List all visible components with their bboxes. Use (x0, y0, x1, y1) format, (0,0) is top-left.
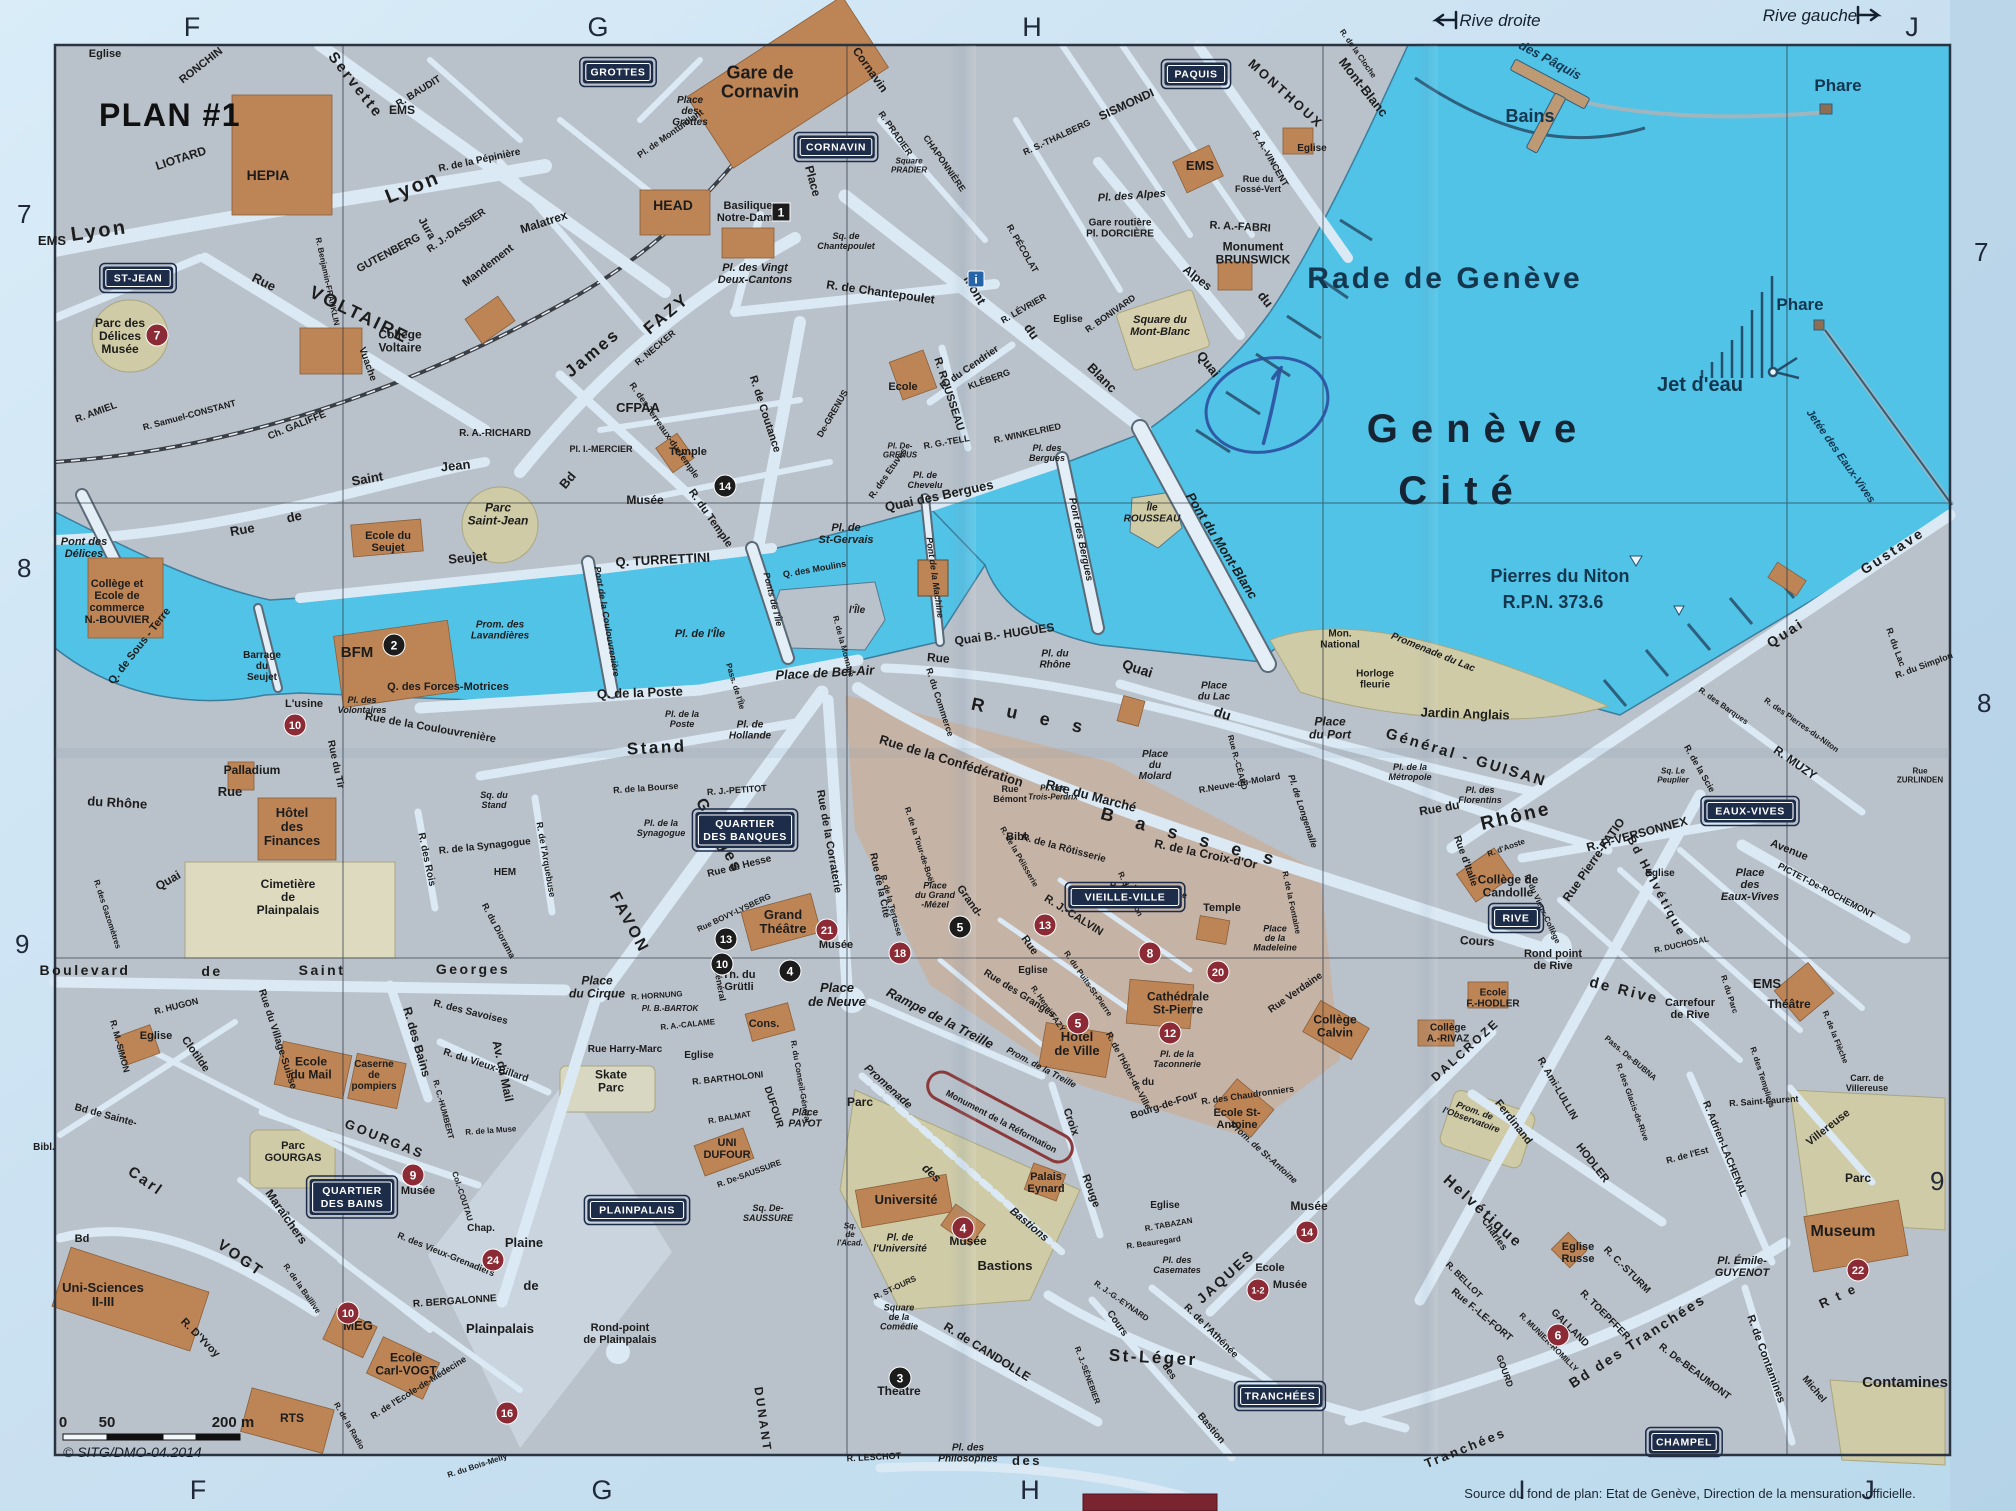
map-label: l'Île (849, 603, 866, 616)
grid-ref-col: H (1020, 1475, 1040, 1505)
grid-ref-col: F (190, 1475, 207, 1505)
map-label: Bains (1505, 106, 1554, 126)
grid-ref-row: 7 (17, 199, 31, 229)
map-label: de (523, 1278, 538, 1293)
map-label: Pl. duRhône (1039, 649, 1071, 671)
district-badge: PAQUIS (1161, 60, 1230, 89)
map-label: GrandThéâtre (760, 907, 807, 936)
map-label: MonumentBRUNSWICK (1216, 240, 1291, 267)
poi-marker-2: 2 (383, 634, 405, 656)
map-label: du (1142, 1077, 1154, 1088)
grid-ref-col: G (591, 1475, 612, 1505)
poi-marker-number: 4 (960, 1221, 967, 1235)
poi-marker-number: 3 (897, 1371, 904, 1385)
map-label: Parc (847, 1095, 873, 1109)
map-label: Ecole (1255, 1262, 1284, 1274)
map-label: Eglise (140, 1030, 172, 1042)
poi-marker-number: 18 (894, 948, 906, 960)
map-label: du Rhône (87, 793, 148, 811)
district-badge: CORNAVIN (794, 133, 878, 162)
map-label: Plainpalais (466, 1321, 534, 1336)
grid-ref-row: 9 (15, 929, 29, 959)
map-label: Sq. duStand (480, 790, 508, 810)
map-label: Q. de la Poste (597, 684, 683, 702)
district-badge: ST-JEAN (100, 264, 176, 293)
map-label: PLAN #1 (99, 97, 241, 133)
legend-box-partial (1083, 1494, 1217, 1511)
poi-marker-4: 4 (952, 1217, 974, 1239)
poi-marker-10: 10 (337, 1302, 359, 1324)
map-label: SkateParc (595, 1068, 627, 1095)
district-badge: GROTTES (580, 58, 656, 87)
map-label: Cours (1460, 933, 1496, 949)
map-label: CollègeA.-RIVAZ (1427, 1023, 1470, 1045)
grid-ref-col: G (587, 12, 608, 42)
map-label: Pl. de laMétropole (1388, 762, 1431, 782)
map-label: Placedu Port (1309, 715, 1352, 742)
grid-ref-col: H (1022, 12, 1042, 42)
map-label: Rue Harry-Marc (588, 1044, 663, 1055)
district-badge: CHAMPEL (1646, 1428, 1722, 1457)
poi-marker-1-2: 1-2 (1247, 1279, 1269, 1301)
map-label: Ecole duSeujet (365, 530, 411, 554)
poi-marker-number: 1-2 (1251, 1285, 1264, 1295)
poi-marker-14: 14 (714, 475, 736, 497)
map-label: Ecole (888, 381, 917, 393)
map-label: de (285, 508, 303, 526)
scale-label: 200 m (212, 1414, 255, 1431)
district-badge: QUARTIERDES BANQUES (692, 809, 797, 851)
map-label: EgliseRusse (1561, 1241, 1594, 1265)
map-label: Pl. de laPoste (665, 709, 699, 729)
map-label: CollègeCalvin (1313, 1013, 1357, 1040)
map-label: Musée (626, 493, 664, 507)
poi-marker-number: 9 (410, 1168, 417, 1182)
map-label: Parc desDélicesMusée (95, 316, 145, 356)
district-badge-label: QUARTIERDES BAINS (321, 1185, 384, 1210)
map-label: EMS (38, 233, 67, 248)
district-badge: TRANCHÉES (1235, 1382, 1326, 1411)
poi-marker-number: 12 (1164, 1028, 1176, 1040)
map-label: Temple (1203, 902, 1241, 914)
map-label: Pl. de laSynagogue (637, 818, 686, 838)
map-label: Eglise (1053, 314, 1083, 325)
map-label: Stand (626, 736, 687, 758)
poi-marker-number: 8 (1147, 946, 1154, 960)
district-badge-label: ST-JEAN (114, 273, 163, 285)
map-label: de (201, 963, 222, 979)
map-label: Musée (401, 1185, 435, 1197)
map-label: Chap. (467, 1223, 495, 1234)
poi-marker-number: 10 (342, 1308, 354, 1320)
poi-marker-number: 6 (1555, 1328, 1562, 1342)
map-label: Pl. B.-BARTOK (642, 1004, 700, 1013)
map-label: Bastions (978, 1258, 1033, 1273)
map-label: Sq. LePeuplier (1657, 767, 1689, 785)
map-label: Palladium (224, 763, 281, 777)
poi-marker-number: 10 (716, 959, 728, 971)
poi-marker-number: i (974, 272, 977, 286)
poi-marker-10: 10 (711, 953, 733, 975)
district-badge-label: VIEILLE-VILLE (1085, 892, 1166, 904)
district-badge: EAUX-VIVES (1701, 797, 1799, 826)
poi-marker-number: 10 (289, 720, 301, 732)
map-label: Q. des Forces-Motrices (387, 681, 509, 693)
poi-marker-number: 5 (1075, 1016, 1082, 1030)
map-label: Carr. deVillereuse (1846, 1073, 1888, 1093)
poi-marker-22: 22 (1847, 1259, 1869, 1281)
map-label: R. A.-RICHARD (459, 428, 531, 439)
map-label: Gare routièrePl. DORCIÈRE (1086, 218, 1154, 240)
map-label: Carrefourde Rive (1665, 997, 1716, 1021)
map-label: Pl. desBergues (1029, 443, 1065, 463)
poi-marker-number: 4 (787, 964, 794, 978)
map-label: PlacePAYOT (789, 1108, 823, 1130)
map-label: Rue (926, 650, 950, 666)
map-label: SquarePRADIER (891, 157, 927, 175)
map-label: Cons. (749, 1018, 780, 1030)
phare-paquis (1820, 104, 1832, 114)
map-label: Pl. de l'Île (675, 627, 725, 640)
poi-marker-8: 8 (1139, 942, 1161, 964)
poi-marker-20: 20 (1207, 961, 1229, 983)
map-label: Phare (1814, 76, 1861, 95)
map-label: Pl. de laTaconnerie (1153, 1049, 1201, 1069)
map-label: Plaine (505, 1235, 543, 1250)
map-label: Eglise (1297, 143, 1327, 154)
map-label: Placedu Lac (1198, 681, 1231, 703)
poi-marker-number: 2 (391, 638, 398, 652)
map-label: EMS (389, 103, 415, 117)
poi-marker-6: 6 (1547, 1324, 1569, 1346)
poi-marker-3: 3 (889, 1367, 911, 1389)
map-label: des (1012, 1453, 1042, 1468)
grid-ref-col: J (1905, 12, 1919, 42)
map-label: L'usine (285, 698, 323, 710)
map-label: R.P.N. 373.6 (1503, 592, 1604, 612)
poi-marker-1: 1 (772, 203, 790, 221)
map-label: Pont desDélices (61, 536, 107, 560)
map-label: Prom. desLavandières (471, 620, 530, 642)
map-label: Rade de Genève (1307, 262, 1582, 295)
map-label: BasiliqueNotre-Dame (717, 200, 779, 224)
source-credit: Source du fond de plan: Etat de Genève, … (1464, 1486, 1915, 1501)
poi-marker-21: 21 (816, 919, 838, 941)
poi-marker-7: 7 (146, 324, 168, 346)
map-label: Georges (436, 961, 510, 977)
poi-marker-number: 13 (1039, 920, 1051, 932)
poi-marker-number: 22 (1852, 1265, 1864, 1277)
map-label: Phare (1776, 295, 1823, 314)
map-label: Ecoledu Mail (290, 1055, 331, 1082)
map-label: CollègeVoltaire (378, 328, 422, 355)
map-label: Square duMont-Blanc (1130, 314, 1190, 338)
poi-marker-number: 7 (154, 328, 161, 342)
map-label: Pl. Émile-GUYENOT (1715, 1254, 1771, 1279)
map-label: Université (875, 1192, 938, 1207)
map-label: Bibl. (33, 1142, 55, 1153)
poi-marker-14: 14 (1296, 1221, 1318, 1243)
poi-marker-number: 21 (821, 925, 833, 937)
poi-marker-4: 4 (779, 960, 801, 982)
poi-marker-i: i (968, 271, 984, 287)
poi-marker-9: 9 (402, 1164, 424, 1186)
district-badge: VIEILLE-VILLE (1065, 883, 1185, 912)
district-badge-label: PLAINPALAIS (599, 1205, 675, 1217)
poi-marker-number: 20 (1212, 967, 1224, 979)
poi-marker-13: 13 (715, 928, 737, 950)
district-badge-label: CORNAVIN (806, 142, 866, 154)
poi-marker-16: 16 (496, 1402, 518, 1424)
poi-marker-24: 24 (482, 1249, 504, 1271)
poi-marker-number: 13 (720, 934, 732, 946)
grid-ref-col: F (184, 12, 201, 42)
poi-marker-18: 18 (889, 942, 911, 964)
grid-ref-row: 8 (1977, 688, 1991, 718)
poi-marker-number: 14 (1301, 1227, 1314, 1239)
map-label: Pierres du Niton (1490, 566, 1629, 586)
map-label: Rue (218, 784, 243, 799)
map-label: CathédraleSt-Pierre (1147, 990, 1209, 1017)
poi-marker-number: 16 (501, 1408, 513, 1420)
map-label: Eglise (89, 48, 121, 60)
map-label: Eglise (1150, 1200, 1180, 1211)
map-label: RTS (280, 1411, 304, 1425)
poi-marker-12: 12 (1159, 1022, 1181, 1044)
poi-marker-number: 1 (778, 205, 785, 219)
map-label: Cité (1398, 469, 1526, 513)
grid-ref-row: 7 (1974, 237, 1988, 267)
poi-marker-5: 5 (949, 916, 971, 938)
district-badge: QUARTIERDES BAINS (307, 1176, 398, 1218)
copyright-note: © SITG/DMO-04.2014 (63, 1444, 202, 1460)
map-label: Pl. des VingtDeux-Cantons (718, 262, 793, 286)
map-label: Eglise (1018, 965, 1048, 976)
rive-droite-label: Rive droite (1459, 11, 1540, 30)
poi-marker-5: 5 (1067, 1012, 1089, 1034)
district-badge-label: QUARTIERDES BANQUES (703, 818, 787, 843)
map-label: EMS (1753, 976, 1782, 991)
map-label: EMS (1186, 158, 1215, 173)
poi-marker-10: 10 (284, 714, 306, 736)
map-label: HEAD (653, 197, 693, 213)
district-badge-label: PAQUIS (1174, 69, 1217, 81)
scale-label: 50 (99, 1414, 116, 1431)
district-badge-label: CHAMPEL (1656, 1437, 1712, 1449)
map-label: Bd (75, 1233, 90, 1245)
map-label: HEM (494, 867, 516, 878)
map-label: BFM (341, 644, 374, 661)
grid-ref-row: 9 (1930, 1166, 1944, 1196)
map-label: Genève (1367, 407, 1590, 451)
map-label: Rond-pointde Plainpalais (583, 1322, 656, 1346)
map-label: PalaisEynard (1027, 1171, 1064, 1195)
map-label: Musée (1290, 1199, 1328, 1213)
map-label: Gare deCornavin (721, 62, 799, 101)
map-label: Boulevard (40, 962, 131, 978)
geneva-city-map: PLAN #1Rade de GenèveGenèveCitéJet d'eau… (0, 0, 2016, 1511)
scale-label: 0 (59, 1414, 67, 1431)
map-label: Contamines (1862, 1374, 1948, 1391)
map-label: Parc (1845, 1171, 1871, 1185)
map-label: Jet d'eau (1657, 374, 1743, 396)
map-photo: PLAN #1Rade de GenèveGenèveCitéJet d'eau… (0, 0, 2016, 1511)
district-badge: RIVE (1489, 904, 1544, 933)
grid-ref-row: 8 (17, 553, 31, 583)
poi-marker-number: 24 (487, 1255, 500, 1267)
district-badge-label: TRANCHÉES (1245, 1390, 1316, 1403)
map-label: Horlogefleurie (1356, 669, 1394, 691)
map-label: Jean (440, 457, 471, 475)
district-badge: PLAINPALAIS (584, 1196, 689, 1225)
district-badge-label: EAUX-VIVES (1715, 806, 1785, 818)
poi-marker-number: 14 (719, 481, 732, 493)
map-label: HEPIA (247, 167, 290, 183)
paper-fold-edge (1950, 0, 2016, 1511)
district-badge-label: GROTTES (591, 67, 646, 79)
map-label: Pl. I.-MERCIER (569, 444, 633, 454)
map-label: Saint (299, 962, 346, 978)
map-label: Théâtre (1767, 997, 1811, 1011)
map-label: Eglise (684, 1050, 714, 1061)
map-label: Jardin Anglais (1420, 704, 1510, 722)
map-label: Museum (1811, 1223, 1876, 1240)
map-label: Musée (1273, 1279, 1307, 1291)
rive-gauche-label: Rive gauche (1763, 6, 1858, 25)
map-label: Collège etEcole decommerceN.-BOUVIER (85, 578, 150, 626)
district-badge-label: RIVE (1503, 913, 1530, 925)
poi-marker-13: 13 (1034, 914, 1056, 936)
phare-eaux-vives (1814, 320, 1824, 330)
poi-marker-number: 5 (957, 920, 964, 934)
